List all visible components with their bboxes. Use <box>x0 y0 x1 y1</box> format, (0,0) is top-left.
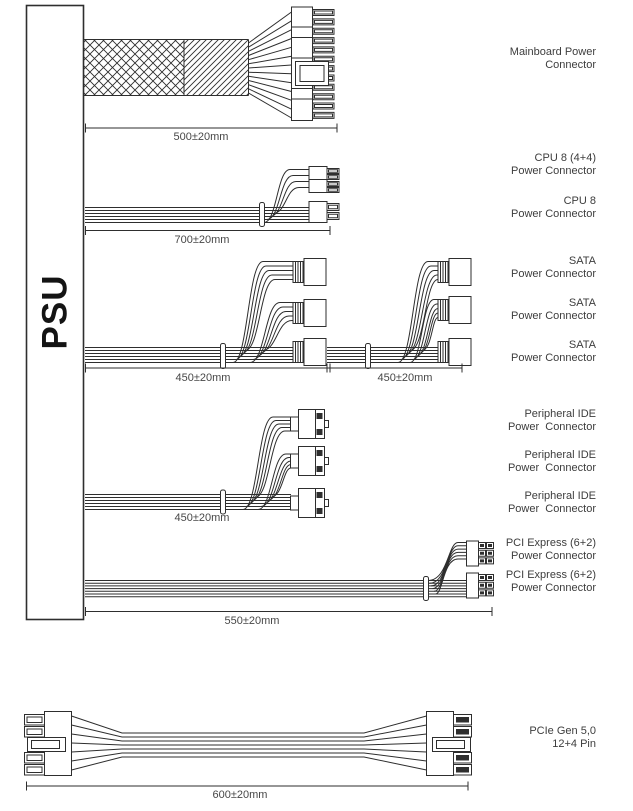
psu-label-wrap: PSU <box>27 233 84 391</box>
dimension-text-450mm-b: 450±20mm <box>378 372 433 384</box>
ide-molex-connector <box>291 447 329 476</box>
cpu-8-connector <box>309 202 339 223</box>
label-sata-power-connector-3: SATAPower Connector <box>406 339 596 365</box>
label-peripheral-ide-power-connector-3: Peripheral IDEPower Connector <box>406 490 596 516</box>
dimension-text-600mm: 600±20mm <box>213 789 268 801</box>
dimension-text-550mm: 550±20mm <box>225 615 280 627</box>
ide-molex-connector <box>291 410 329 439</box>
dimension-line-550 <box>86 607 493 616</box>
dimension-text-450mm-a: 450±20mm <box>176 372 231 384</box>
cable-tie <box>221 344 226 369</box>
dimension-text-500mm: 500±20mm <box>174 131 229 143</box>
atx-24pin-connector <box>292 7 335 121</box>
dimension-text-450mm-c: 450±20mm <box>175 512 230 524</box>
label-cpu-8-4plus4-power-connector: CPU 8 (4+4)Power Connector <box>406 152 596 178</box>
cable-tie <box>366 344 371 369</box>
label-mainboard-power-connector: Mainboard PowerConnector <box>406 46 596 72</box>
cable-tie <box>260 203 265 227</box>
wire-fanout <box>249 12 292 118</box>
ide-cable <box>85 410 329 518</box>
gen5-cable <box>25 712 472 791</box>
mainboard-cable <box>83 7 337 133</box>
sata-connector <box>293 339 326 366</box>
sata-connector <box>293 300 326 327</box>
cpu-cable <box>85 167 339 236</box>
ide-molex-connector <box>291 489 329 518</box>
label-pcie-gen5-12plus4-pin: PCIe Gen 5,012+4 Pin <box>406 725 596 751</box>
dimension-text-700mm: 700±20mm <box>175 234 230 246</box>
cable-tie <box>221 490 226 514</box>
label-peripheral-ide-power-connector-1: Peripheral IDEPower Connector <box>406 408 596 434</box>
label-pci-express-6plus2-power-connector-1: PCI Express (6+2)Power Connector <box>406 537 596 563</box>
psu-label: PSU <box>36 275 76 350</box>
label-sata-power-connector-1: SATAPower Connector <box>406 255 596 281</box>
sata-connector <box>293 259 326 286</box>
cpu-4plus4-connector <box>309 167 339 193</box>
label-peripheral-ide-power-connector-2: Peripheral IDEPower Connector <box>406 449 596 475</box>
psu-cable-diagram <box>0 0 633 811</box>
label-sata-power-connector-2: SATAPower Connector <box>406 297 596 323</box>
label-pci-express-6plus2-power-connector-2: PCI Express (6+2)Power Connector <box>406 569 596 595</box>
psu-cable-diagram-page: PSU Mainboard PowerConnector CPU 8 (4+4)… <box>0 0 633 811</box>
gen5-connector-left <box>25 712 72 776</box>
heatshrink-sleeve <box>184 40 249 95</box>
braided-sleeve <box>83 40 184 95</box>
sata-cable-1 <box>85 259 330 373</box>
label-cpu-8-power-connector: CPU 8Power Connector <box>406 195 596 221</box>
